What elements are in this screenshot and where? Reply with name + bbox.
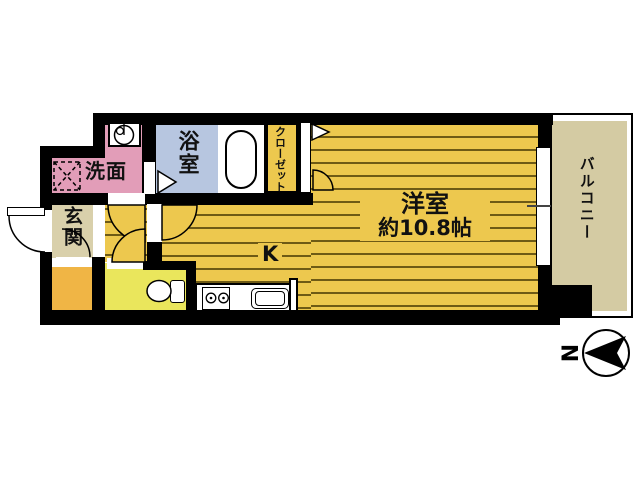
window-balcony — [536, 147, 551, 266]
compass: N — [559, 330, 629, 376]
washing-machine-icon — [108, 122, 141, 147]
floor-corridor — [105, 203, 148, 262]
bathroom-label: 浴室 — [177, 130, 199, 194]
kitchen-counter-end — [289, 278, 298, 312]
western-room-name: 洋室 — [360, 192, 490, 217]
closet-door — [300, 122, 311, 193]
stove-icon — [202, 287, 230, 310]
door-opening-toilet — [107, 258, 143, 269]
entrance-step-area — [52, 267, 92, 310]
compass-circle — [583, 330, 629, 376]
door-opening-washroom — [108, 193, 145, 205]
floor-plan: 洗面 浴室 クローゼット 玄関 K 洋室 約10.8帖 バルコニー — [0, 0, 640, 480]
wall-corridor-right — [147, 242, 162, 263]
north-arrow-icon — [584, 336, 626, 370]
wall-middle-horizontal — [40, 193, 313, 205]
balcony-label: バルコニー — [578, 156, 594, 266]
toilet-tank — [170, 280, 185, 303]
door-opening-entrance-corridor — [93, 205, 105, 257]
wall-balcony-notch — [538, 285, 592, 316]
wall-vestibule-east — [92, 257, 105, 312]
compass-north-label: N — [559, 344, 584, 362]
door-opening-front — [40, 210, 52, 252]
door-opening-bathroom — [144, 162, 155, 194]
western-room-label: 洋室 約10.8帖 — [360, 190, 490, 241]
bathtub-icon — [225, 130, 257, 189]
entrance-label: 玄関 — [61, 206, 81, 254]
sink-basin — [255, 291, 285, 306]
washroom-label: 洗面 — [85, 161, 127, 182]
door-opening-entrance-step — [56, 257, 89, 267]
closet-label: クローゼット — [274, 126, 286, 190]
front-door-leaf — [7, 207, 45, 216]
door-opening-kitchen — [147, 204, 162, 242]
wall-bottom — [40, 310, 560, 325]
kitchen-label: K — [258, 243, 282, 265]
western-room-size: 約10.8帖 — [360, 217, 490, 239]
wall-top — [93, 113, 553, 125]
